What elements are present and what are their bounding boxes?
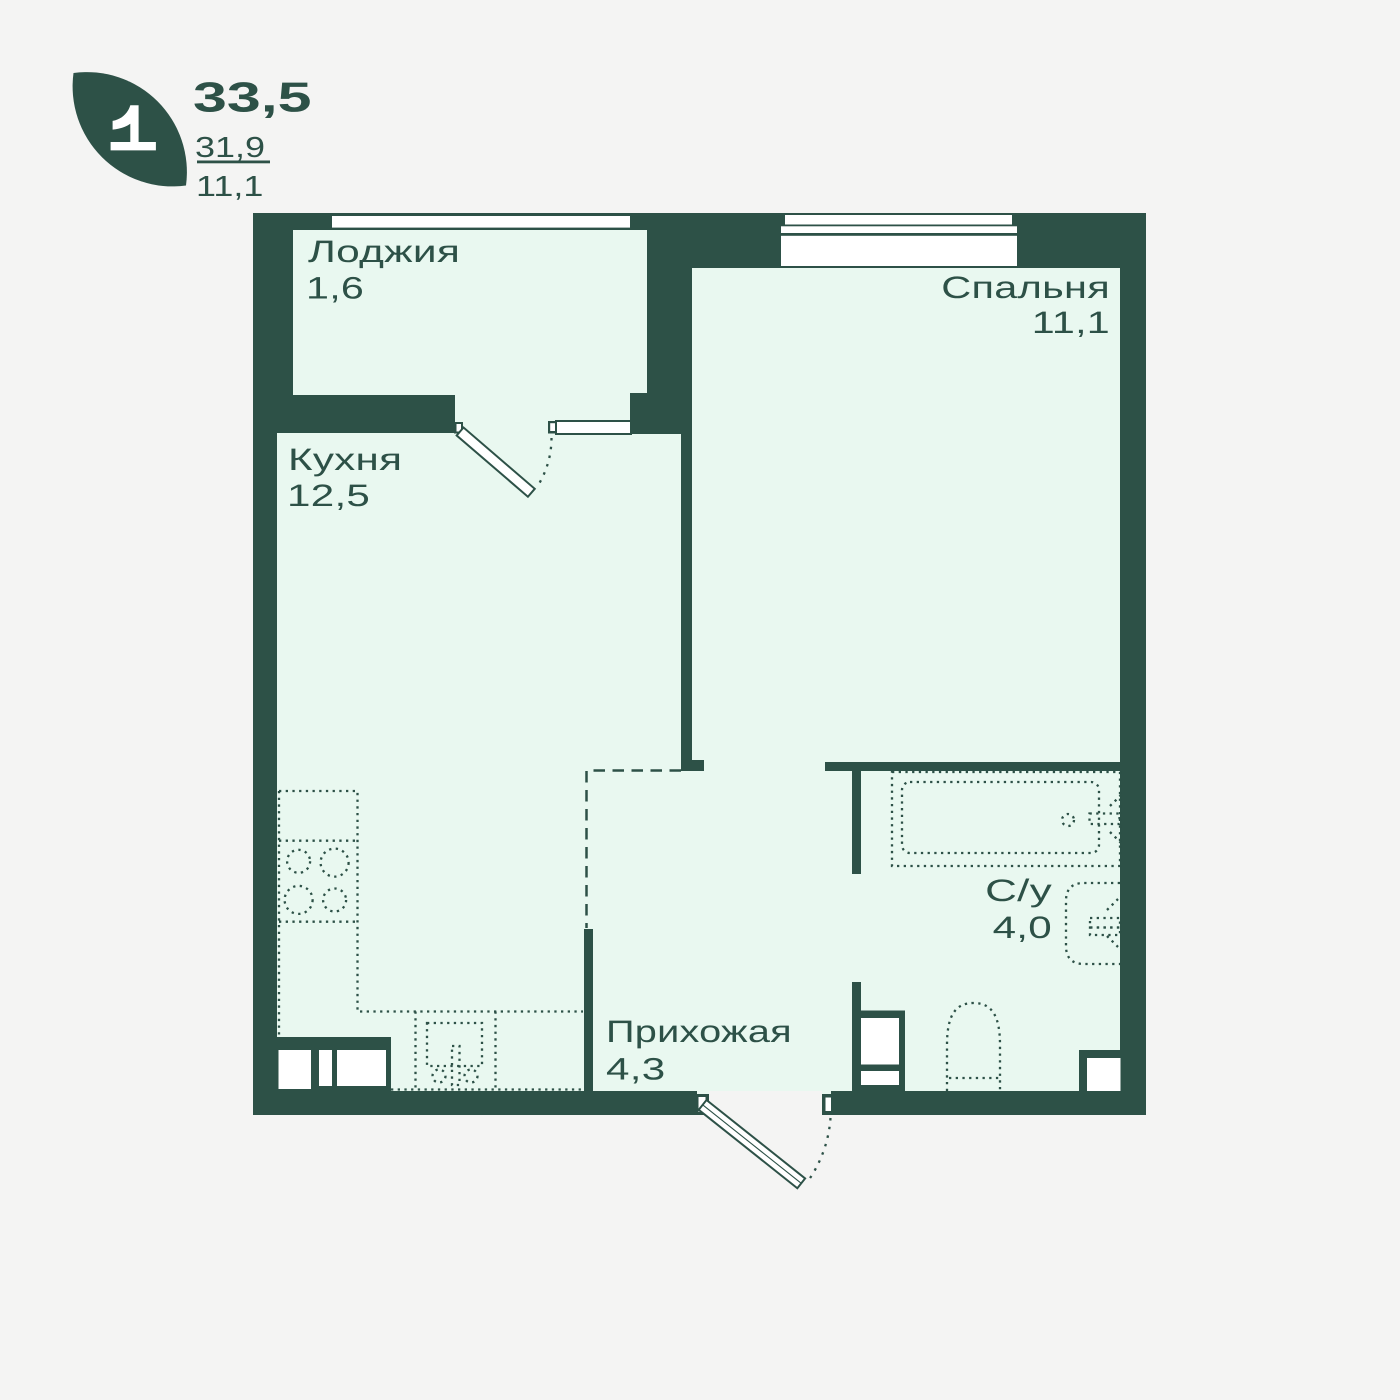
svg-text:Спальня: Спальня bbox=[941, 270, 1110, 305]
svg-text:11,1: 11,1 bbox=[196, 171, 263, 203]
svg-text:4,3: 4,3 bbox=[606, 1052, 665, 1087]
svg-text:31,9: 31,9 bbox=[195, 132, 265, 164]
svg-text:12,5: 12,5 bbox=[287, 478, 370, 513]
svg-text:Кухня: Кухня bbox=[288, 442, 402, 477]
svg-text:Прихожая: Прихожая bbox=[606, 1014, 792, 1049]
svg-text:33,5: 33,5 bbox=[193, 74, 312, 121]
svg-text:С/у: С/у bbox=[985, 873, 1052, 908]
svg-text:Лоджия: Лоджия bbox=[308, 234, 460, 269]
svg-text:1,6: 1,6 bbox=[306, 271, 364, 306]
svg-text:4,0: 4,0 bbox=[993, 910, 1052, 945]
svg-text:11,1: 11,1 bbox=[1032, 305, 1110, 340]
